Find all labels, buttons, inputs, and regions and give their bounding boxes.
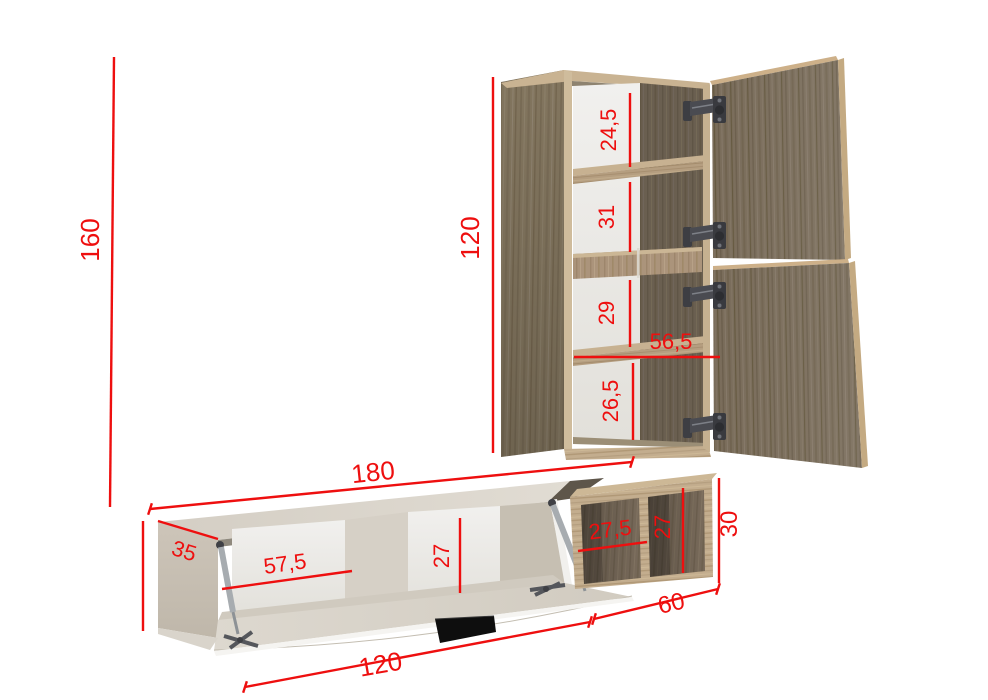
dim-label-cabinet-section-1: 24,5 <box>596 109 621 152</box>
cabinet-side-shade <box>501 70 564 457</box>
cabinet-door-top <box>710 56 851 260</box>
dim-line-unit-width <box>592 583 720 624</box>
dim-label-cabinet-section-2: 31 <box>594 205 619 229</box>
wall-cabinet <box>501 56 868 468</box>
furniture-dimension-diagram: 160 120 24,5 31 29 56,5 26,5 180 35 57,5… <box>0 0 988 700</box>
dim-label-cabinet-section-3: 29 <box>594 301 619 325</box>
dim-label-unit-bay-width: 27,5 <box>587 515 633 545</box>
cabinet-door-bottom <box>713 259 868 468</box>
cabinet-right-front-edge <box>703 84 710 452</box>
dim-line-total-height <box>110 57 114 507</box>
dim-label-cabinet-height: 120 <box>455 216 485 259</box>
dim-label-stand-width: 180 <box>350 455 396 489</box>
dim-label-total-height: 160 <box>75 218 105 261</box>
dim-label-stand-inner-height: 27 <box>429 544 454 568</box>
cabinet-bottom-edge <box>564 446 711 460</box>
dim-label-unit-bay-height: 27 <box>650 515 675 539</box>
furniture-drawing-page: 160 120 24,5 31 29 56,5 26,5 180 35 57,5… <box>0 0 988 700</box>
dim-label-cabinet-shelf-width: 56,5 <box>650 329 693 354</box>
dim-label-flap-width: 120 <box>356 646 404 683</box>
cabinet-side-front-edge <box>564 70 572 452</box>
dim-label-unit-height: 30 <box>716 511 743 538</box>
flap-handle <box>435 616 496 643</box>
dim-label-cabinet-section-4: 26,5 <box>598 380 623 423</box>
dim-label-unit-width: 60 <box>655 588 687 620</box>
